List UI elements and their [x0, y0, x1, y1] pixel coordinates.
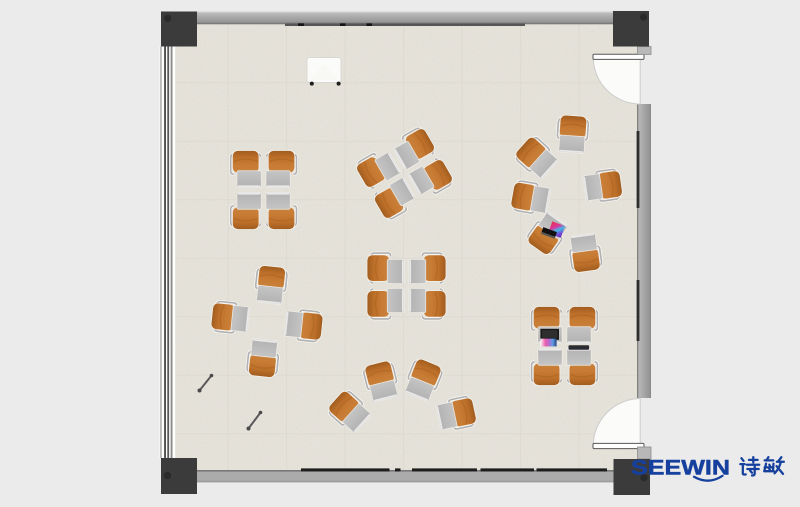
svg-text:SEEWIN: SEEWIN [631, 455, 730, 479]
